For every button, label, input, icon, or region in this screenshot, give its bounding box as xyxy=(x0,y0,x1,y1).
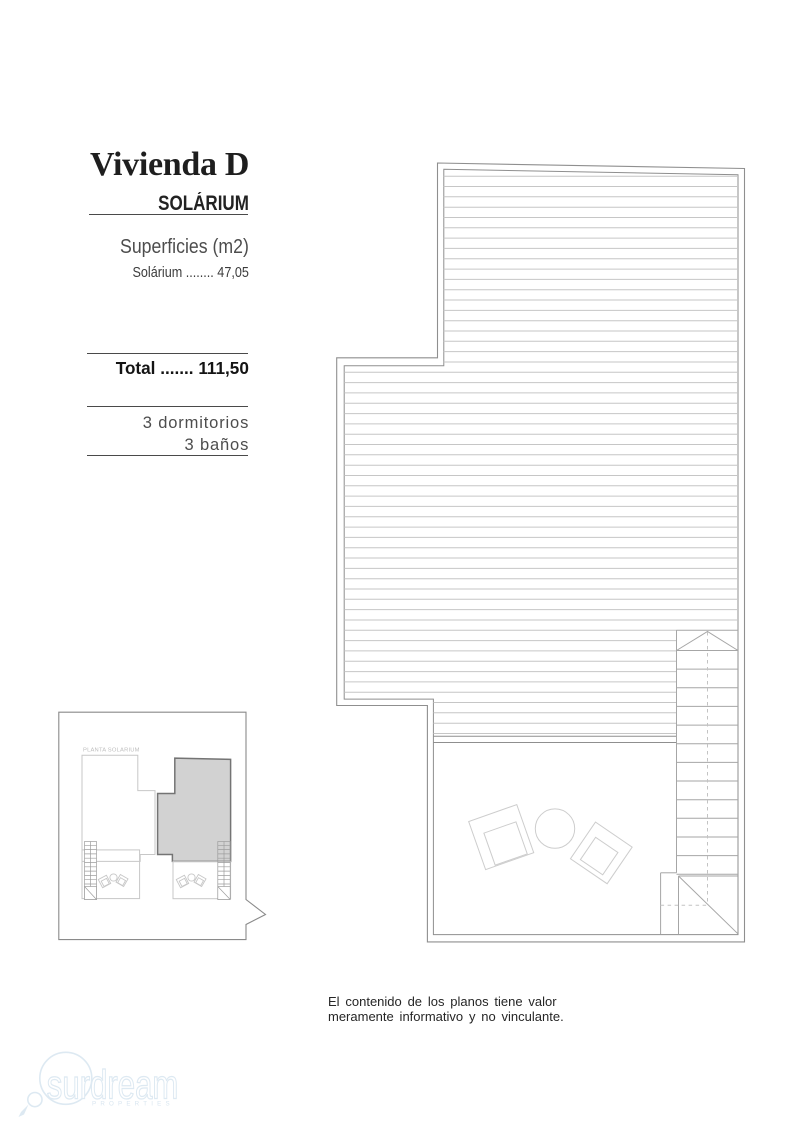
svg-text:PROPERTIES: PROPERTIES xyxy=(92,1100,174,1107)
svg-text:PLANTA SOLARIUM: PLANTA SOLARIUM xyxy=(83,748,140,754)
